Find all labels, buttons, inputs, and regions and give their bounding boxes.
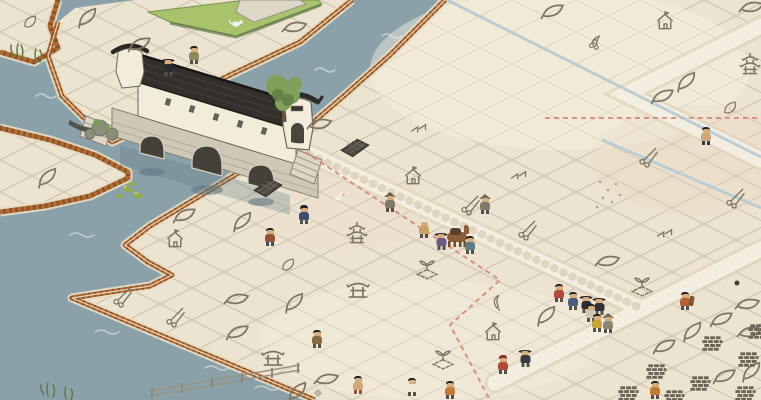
body bbox=[312, 336, 322, 344]
legs bbox=[651, 395, 659, 399]
legs bbox=[593, 328, 601, 332]
body bbox=[480, 202, 490, 210]
legs bbox=[521, 363, 529, 367]
body bbox=[419, 226, 429, 234]
villager[interactable] bbox=[650, 381, 660, 399]
legs bbox=[408, 392, 416, 396]
camel-legs bbox=[448, 241, 466, 247]
body bbox=[436, 238, 446, 246]
villager[interactable] bbox=[680, 292, 690, 310]
villager[interactable] bbox=[299, 205, 309, 224]
villager[interactable] bbox=[312, 330, 322, 348]
legs bbox=[555, 298, 563, 302]
body bbox=[445, 387, 455, 395]
legs bbox=[164, 72, 172, 76]
body bbox=[701, 133, 711, 141]
legs bbox=[499, 370, 507, 374]
legs bbox=[313, 344, 321, 348]
villager[interactable] bbox=[568, 292, 578, 310]
legs bbox=[300, 220, 308, 224]
legs bbox=[702, 141, 710, 145]
legs bbox=[190, 60, 198, 64]
villager[interactable] bbox=[519, 350, 532, 367]
character-layer bbox=[0, 0, 761, 400]
body bbox=[592, 320, 602, 328]
villager[interactable] bbox=[701, 127, 711, 145]
villager[interactable] bbox=[189, 46, 199, 64]
body bbox=[385, 200, 395, 208]
camel-head bbox=[464, 225, 469, 234]
legs bbox=[354, 390, 362, 394]
game-viewport bbox=[0, 0, 761, 400]
villager[interactable] bbox=[435, 233, 448, 250]
legs bbox=[446, 395, 454, 399]
legs bbox=[569, 306, 577, 310]
body bbox=[353, 382, 363, 390]
body bbox=[189, 52, 199, 60]
legs bbox=[604, 329, 612, 333]
body bbox=[568, 298, 578, 306]
legs bbox=[266, 242, 274, 246]
legs bbox=[437, 246, 445, 250]
villager[interactable] bbox=[265, 228, 275, 246]
villager[interactable] bbox=[465, 236, 475, 254]
villager[interactable] bbox=[445, 381, 455, 399]
villager[interactable] bbox=[162, 59, 175, 76]
body bbox=[498, 362, 508, 370]
villager[interactable] bbox=[479, 194, 491, 214]
body bbox=[554, 290, 564, 298]
body bbox=[650, 387, 660, 395]
villager[interactable] bbox=[353, 376, 363, 394]
body bbox=[407, 384, 417, 392]
legs bbox=[420, 234, 428, 238]
body bbox=[520, 355, 530, 363]
body bbox=[265, 234, 275, 242]
legs bbox=[681, 306, 689, 310]
body bbox=[163, 64, 173, 72]
villager[interactable] bbox=[554, 284, 564, 302]
legs bbox=[466, 250, 474, 254]
body bbox=[299, 212, 309, 220]
body bbox=[603, 321, 613, 329]
villager[interactable] bbox=[407, 378, 417, 396]
legs bbox=[386, 208, 394, 212]
cargo-pack bbox=[450, 228, 461, 235]
villager[interactable] bbox=[419, 219, 429, 238]
body bbox=[465, 242, 475, 250]
villager[interactable] bbox=[592, 314, 602, 332]
legs bbox=[481, 210, 489, 214]
villager[interactable] bbox=[384, 192, 396, 212]
villager[interactable] bbox=[602, 313, 614, 333]
villager[interactable] bbox=[498, 355, 508, 374]
firewood-pack bbox=[688, 296, 695, 307]
